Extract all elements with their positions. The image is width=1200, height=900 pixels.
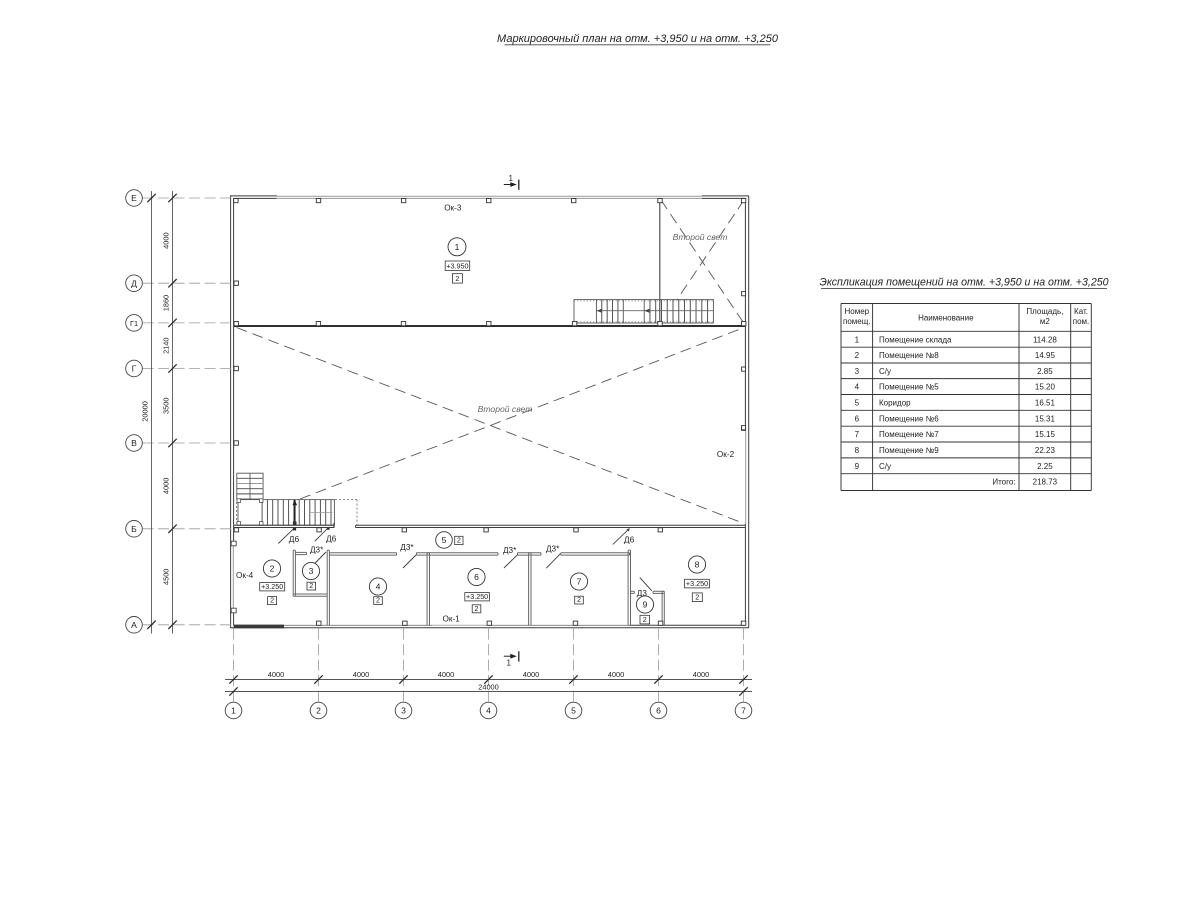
svg-text:15.15: 15.15 <box>1035 430 1056 439</box>
svg-text:5: 5 <box>442 535 447 545</box>
svg-text:4: 4 <box>486 706 491 716</box>
svg-text:+3.950: +3.950 <box>446 262 468 271</box>
svg-text:Помещение №8: Помещение №8 <box>879 351 939 360</box>
svg-text:1: 1 <box>855 335 860 344</box>
svg-text:14.95: 14.95 <box>1035 351 1056 360</box>
svg-text:2: 2 <box>855 351 860 360</box>
svg-text:Ок-3: Ок-3 <box>444 203 462 212</box>
svg-text:2.25: 2.25 <box>1037 462 1053 471</box>
svg-text:3500: 3500 <box>162 398 171 414</box>
svg-text:Ок-1: Ок-1 <box>443 614 461 623</box>
svg-text:4000: 4000 <box>438 670 454 679</box>
svg-text:7: 7 <box>855 430 860 439</box>
svg-text:1860: 1860 <box>162 295 171 311</box>
svg-text:15.31: 15.31 <box>1035 414 1056 423</box>
svg-text:Ок-2: Ок-2 <box>717 450 735 459</box>
svg-text:+3.250: +3.250 <box>686 579 708 588</box>
svg-text:Второй свет: Второй свет <box>478 404 533 414</box>
svg-text:4: 4 <box>376 582 381 592</box>
svg-text:114.28: 114.28 <box>1033 335 1057 344</box>
svg-text:Помещение №5: Помещение №5 <box>879 383 939 392</box>
svg-text:1: 1 <box>506 659 511 668</box>
svg-text:+3.250: +3.250 <box>466 592 488 601</box>
svg-text:Маркировочный план на отм. +3,: Маркировочный план на отм. +3,950 и на о… <box>497 33 779 45</box>
svg-text:+3.250: +3.250 <box>261 582 283 591</box>
svg-text:7: 7 <box>577 577 582 587</box>
svg-text:2: 2 <box>316 706 321 716</box>
svg-text:2: 2 <box>270 564 275 574</box>
svg-text:2: 2 <box>376 596 380 605</box>
svg-text:А: А <box>131 620 137 630</box>
svg-text:20000: 20000 <box>141 401 150 422</box>
svg-text:4500: 4500 <box>162 569 171 585</box>
svg-text:9: 9 <box>855 462 860 471</box>
svg-text:Г: Г <box>132 364 137 374</box>
svg-text:С/у: С/у <box>879 367 891 376</box>
svg-text:2: 2 <box>455 274 459 283</box>
svg-text:Ок-4: Ок-4 <box>236 571 254 580</box>
svg-text:3: 3 <box>401 706 406 716</box>
svg-text:4000: 4000 <box>268 670 284 679</box>
svg-text:Д3*: Д3* <box>546 545 560 554</box>
svg-text:Г1: Г1 <box>130 319 138 328</box>
svg-text:Помещение №6: Помещение №6 <box>879 414 939 423</box>
svg-text:Кат.: Кат. <box>1074 307 1088 316</box>
svg-text:6: 6 <box>656 706 661 716</box>
svg-text:Д6: Д6 <box>326 534 337 544</box>
svg-text:2: 2 <box>457 536 461 545</box>
svg-text:Д: Д <box>131 278 137 288</box>
svg-text:5: 5 <box>571 706 576 716</box>
svg-text:Экспликация помещений на отм.: Экспликация помещений на отм. +3,950 и н… <box>819 277 1108 289</box>
svg-text:1: 1 <box>508 174 513 183</box>
svg-text:Помещение №7: Помещение №7 <box>879 430 939 439</box>
svg-text:6: 6 <box>855 414 860 423</box>
svg-text:3: 3 <box>855 367 860 376</box>
svg-text:2: 2 <box>270 596 274 605</box>
svg-text:Второй свет: Второй свет <box>673 232 728 242</box>
svg-text:2: 2 <box>475 604 479 613</box>
svg-text:С/у: С/у <box>879 462 891 471</box>
svg-text:1: 1 <box>455 242 460 252</box>
svg-text:Д3*: Д3* <box>310 546 324 555</box>
svg-text:1: 1 <box>231 706 236 716</box>
svg-text:8: 8 <box>695 560 700 570</box>
svg-text:4000: 4000 <box>162 232 171 248</box>
svg-text:5: 5 <box>855 399 860 408</box>
svg-text:2: 2 <box>643 615 647 624</box>
svg-text:24000: 24000 <box>478 682 499 691</box>
svg-text:2: 2 <box>695 593 699 602</box>
svg-text:8: 8 <box>855 446 860 455</box>
svg-text:Д6: Д6 <box>289 534 300 544</box>
svg-text:16.51: 16.51 <box>1035 399 1056 408</box>
svg-text:22.23: 22.23 <box>1035 446 1056 455</box>
svg-text:Площадь,: Площадь, <box>1026 307 1063 316</box>
svg-text:7: 7 <box>741 706 746 716</box>
svg-text:4: 4 <box>855 383 860 392</box>
svg-text:4000: 4000 <box>608 670 624 679</box>
svg-text:2140: 2140 <box>162 337 171 353</box>
svg-text:помещ.: помещ. <box>843 317 871 326</box>
svg-text:Наименование: Наименование <box>918 314 974 323</box>
svg-text:Д3*: Д3* <box>503 546 517 555</box>
svg-text:4000: 4000 <box>523 670 539 679</box>
svg-text:Итого:: Итого: <box>992 478 1015 487</box>
svg-text:Д6: Д6 <box>624 534 635 544</box>
svg-text:4000: 4000 <box>693 670 709 679</box>
svg-text:3: 3 <box>309 566 314 576</box>
svg-text:2: 2 <box>577 595 581 604</box>
svg-text:Б: Б <box>131 524 137 534</box>
svg-text:15.20: 15.20 <box>1035 383 1056 392</box>
svg-text:Номер: Номер <box>844 307 869 316</box>
svg-text:Д3*: Д3* <box>400 543 414 552</box>
svg-text:2: 2 <box>309 581 313 590</box>
svg-text:Коридор: Коридор <box>879 399 911 408</box>
svg-text:9: 9 <box>643 600 648 610</box>
svg-text:Помещение склада: Помещение склада <box>879 335 952 344</box>
svg-text:4000: 4000 <box>162 478 171 494</box>
svg-text:Помещение №9: Помещение №9 <box>879 446 939 455</box>
svg-text:4000: 4000 <box>353 670 369 679</box>
svg-text:м2: м2 <box>1040 317 1051 326</box>
svg-text:Е: Е <box>131 193 137 203</box>
svg-text:пом.: пом. <box>1073 317 1090 326</box>
svg-text:2.85: 2.85 <box>1037 367 1053 376</box>
svg-text:218.73: 218.73 <box>1033 478 1058 487</box>
svg-text:В: В <box>131 438 137 448</box>
svg-text:6: 6 <box>474 572 479 582</box>
